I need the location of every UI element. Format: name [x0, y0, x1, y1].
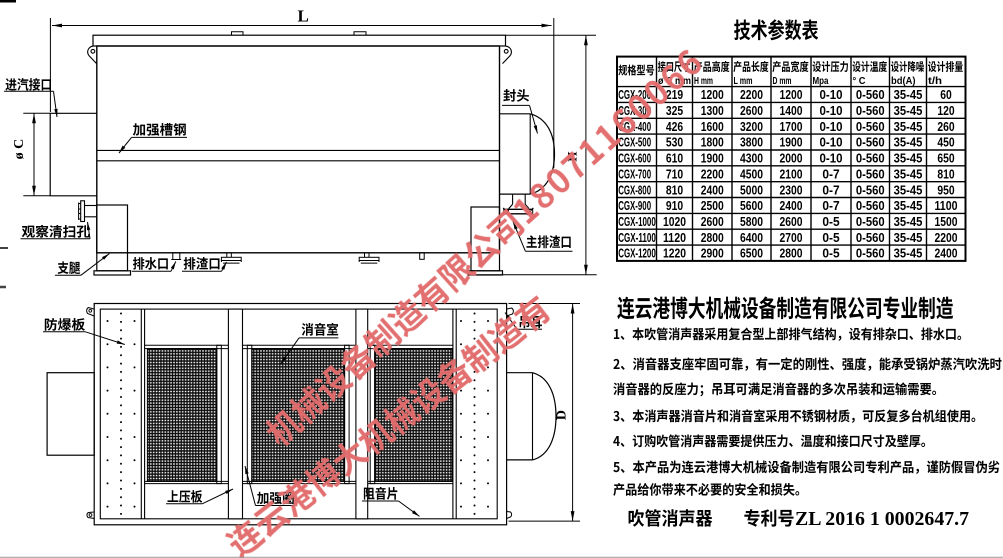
svg-text:2600: 2600 [740, 103, 763, 118]
svg-text:L: L [298, 7, 309, 26]
svg-text:35-45: 35-45 [894, 135, 923, 150]
svg-text:35-45: 35-45 [894, 214, 923, 229]
svg-text:5600: 5600 [740, 198, 763, 213]
svg-text:t/h: t/h [928, 75, 942, 87]
svg-text:450: 450 [937, 135, 954, 150]
svg-text:35-45: 35-45 [894, 151, 923, 166]
svg-text:0-560: 0-560 [856, 214, 885, 229]
svg-text:ø C: ø C [12, 139, 27, 160]
svg-text:2600: 2600 [701, 214, 724, 229]
svg-text:0-560: 0-560 [856, 246, 885, 261]
svg-text:0-560: 0-560 [856, 87, 885, 102]
svg-text:0-560: 0-560 [856, 182, 885, 197]
svg-text:CGX-1000: CGX-1000 [618, 214, 656, 229]
svg-text:0-5: 0-5 [822, 230, 839, 245]
svg-text:CGX-700: CGX-700 [618, 166, 651, 181]
svg-text:0-5: 0-5 [822, 214, 839, 229]
svg-text:2400: 2400 [935, 246, 958, 261]
svg-text:0-560: 0-560 [856, 135, 885, 150]
svg-text:1700: 1700 [780, 119, 803, 134]
svg-text:2600: 2600 [780, 214, 803, 229]
svg-text:1600: 1600 [701, 119, 724, 134]
svg-text:4500: 4500 [740, 166, 763, 181]
svg-text:1900: 1900 [780, 135, 803, 150]
svg-text:426: 426 [666, 119, 683, 134]
svg-text:5000: 5000 [740, 182, 763, 197]
svg-text:325: 325 [666, 103, 683, 118]
svg-text:Mpa: Mpa [813, 75, 829, 87]
svg-text:3200: 3200 [740, 119, 763, 134]
svg-text:0-10: 0-10 [820, 103, 843, 118]
svg-text:2200: 2200 [740, 87, 763, 102]
svg-text:6400: 6400 [740, 230, 763, 245]
svg-text:1120: 1120 [663, 230, 686, 245]
svg-text:L mm: L mm [734, 75, 753, 87]
svg-text:2700: 2700 [780, 230, 803, 245]
svg-text:950: 950 [937, 182, 954, 197]
svg-text:2100: 2100 [780, 166, 803, 181]
svg-text:260: 260 [937, 119, 954, 134]
svg-text:35-45: 35-45 [894, 166, 923, 181]
svg-text:CGX-500: CGX-500 [618, 135, 651, 150]
svg-text:1400: 1400 [780, 103, 803, 118]
svg-text:1800: 1800 [701, 135, 724, 150]
svg-text:CGX-800: CGX-800 [618, 182, 651, 197]
svg-text:CGX-1100: CGX-1100 [618, 230, 656, 245]
svg-text:4300: 4300 [740, 151, 763, 166]
svg-text:810: 810 [937, 166, 954, 181]
svg-text:0-10: 0-10 [820, 87, 843, 102]
svg-text:0-10: 0-10 [820, 119, 843, 134]
svg-text:35-45: 35-45 [894, 182, 923, 197]
svg-text:35-45: 35-45 [894, 246, 923, 261]
svg-text:1900: 1900 [701, 151, 724, 166]
svg-text:0-560: 0-560 [856, 166, 885, 181]
svg-text:3800: 3800 [740, 135, 763, 150]
svg-text:1300: 1300 [701, 103, 724, 118]
svg-text:H mm: H mm [694, 75, 713, 87]
svg-text:D mm: D mm [773, 75, 792, 87]
svg-text:2900: 2900 [701, 246, 724, 261]
svg-text:60: 60 [940, 87, 952, 102]
svg-text:0-560: 0-560 [856, 151, 885, 166]
svg-text:2200: 2200 [935, 230, 958, 245]
svg-text:2400: 2400 [701, 182, 724, 197]
svg-text:0-10: 0-10 [820, 151, 843, 166]
svg-text:0-7: 0-7 [822, 198, 839, 213]
svg-text:35-45: 35-45 [894, 103, 923, 118]
svg-text:35-45: 35-45 [894, 198, 923, 213]
svg-text:6500: 6500 [740, 246, 763, 261]
svg-text:1100: 1100 [935, 198, 958, 213]
svg-text:2800: 2800 [780, 246, 803, 261]
svg-text:0-560: 0-560 [856, 103, 885, 118]
svg-text:35-45: 35-45 [894, 87, 923, 102]
svg-text:910: 910 [666, 198, 683, 213]
svg-text:219: 219 [666, 87, 683, 102]
svg-text:0-5: 0-5 [822, 246, 839, 261]
svg-text:120: 120 [937, 103, 954, 118]
svg-text:° C: ° C [853, 75, 866, 87]
svg-text:ZL 2016 1 0002647.7: ZL 2016 1 0002647.7 [795, 508, 969, 530]
svg-text:5800: 5800 [740, 214, 763, 229]
svg-text:0-7: 0-7 [822, 166, 839, 181]
svg-text:CGX-600: CGX-600 [618, 151, 651, 166]
svg-text:35-45: 35-45 [894, 119, 923, 134]
svg-text:710: 710 [666, 166, 683, 181]
svg-text:1200: 1200 [701, 87, 724, 102]
svg-text:bd(A): bd(A) [891, 75, 916, 87]
svg-text:2200: 2200 [701, 166, 724, 181]
svg-text:2500: 2500 [701, 198, 724, 213]
svg-text:D: D [555, 410, 570, 420]
svg-text:650: 650 [937, 151, 954, 166]
svg-text:1200: 1200 [780, 87, 803, 102]
svg-text:530: 530 [666, 135, 683, 150]
svg-text:0-560: 0-560 [856, 119, 885, 134]
svg-text:0-560: 0-560 [856, 230, 885, 245]
svg-text:1220: 1220 [663, 246, 686, 261]
svg-text:0-10: 0-10 [820, 135, 843, 150]
svg-text:CGX-900: CGX-900 [618, 198, 651, 213]
svg-text:1020: 1020 [663, 214, 686, 229]
svg-text:610: 610 [666, 151, 683, 166]
svg-text:2000: 2000 [780, 151, 803, 166]
svg-text:2300: 2300 [780, 182, 803, 197]
svg-text:0-7: 0-7 [822, 182, 839, 197]
svg-text:810: 810 [666, 182, 683, 197]
svg-text:2800: 2800 [701, 230, 724, 245]
svg-text:CGX-1200: CGX-1200 [618, 246, 656, 261]
svg-text:35-45: 35-45 [894, 230, 923, 245]
svg-text:2400: 2400 [780, 198, 803, 213]
svg-text:1500: 1500 [935, 214, 958, 229]
svg-text:0-560: 0-560 [856, 198, 885, 213]
